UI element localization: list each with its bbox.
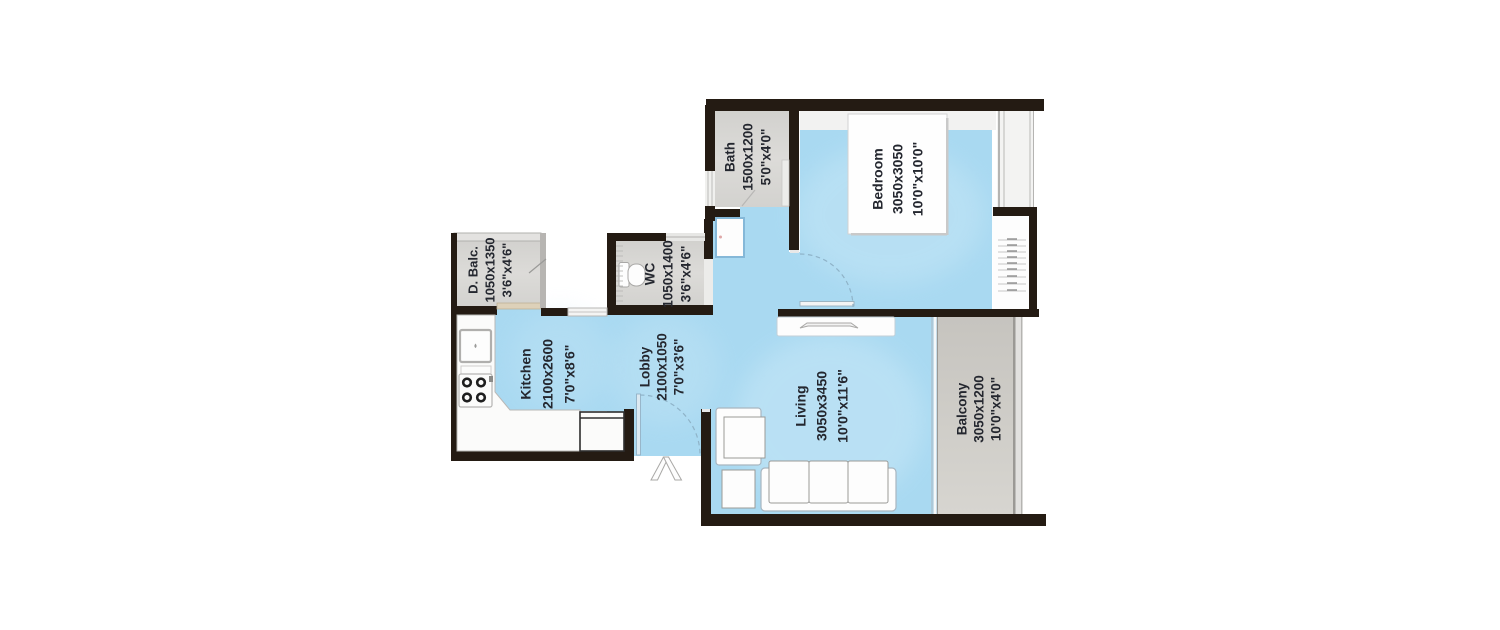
svg-text:Kitchen2100x26007'0"x8'6": Kitchen2100x26007'0"x8'6" — [518, 339, 578, 409]
svg-text:Balcony3050x120010'0"x4'0": Balcony3050x120010'0"x4'0" — [955, 375, 1004, 443]
svg-text:D. Balc.1050x13503'6"x4'6": D. Balc.1050x13503'6"x4'6" — [466, 237, 515, 302]
svg-text:Bedroom3050x305010'0"x10'0": Bedroom3050x305010'0"x10'0" — [870, 142, 926, 216]
